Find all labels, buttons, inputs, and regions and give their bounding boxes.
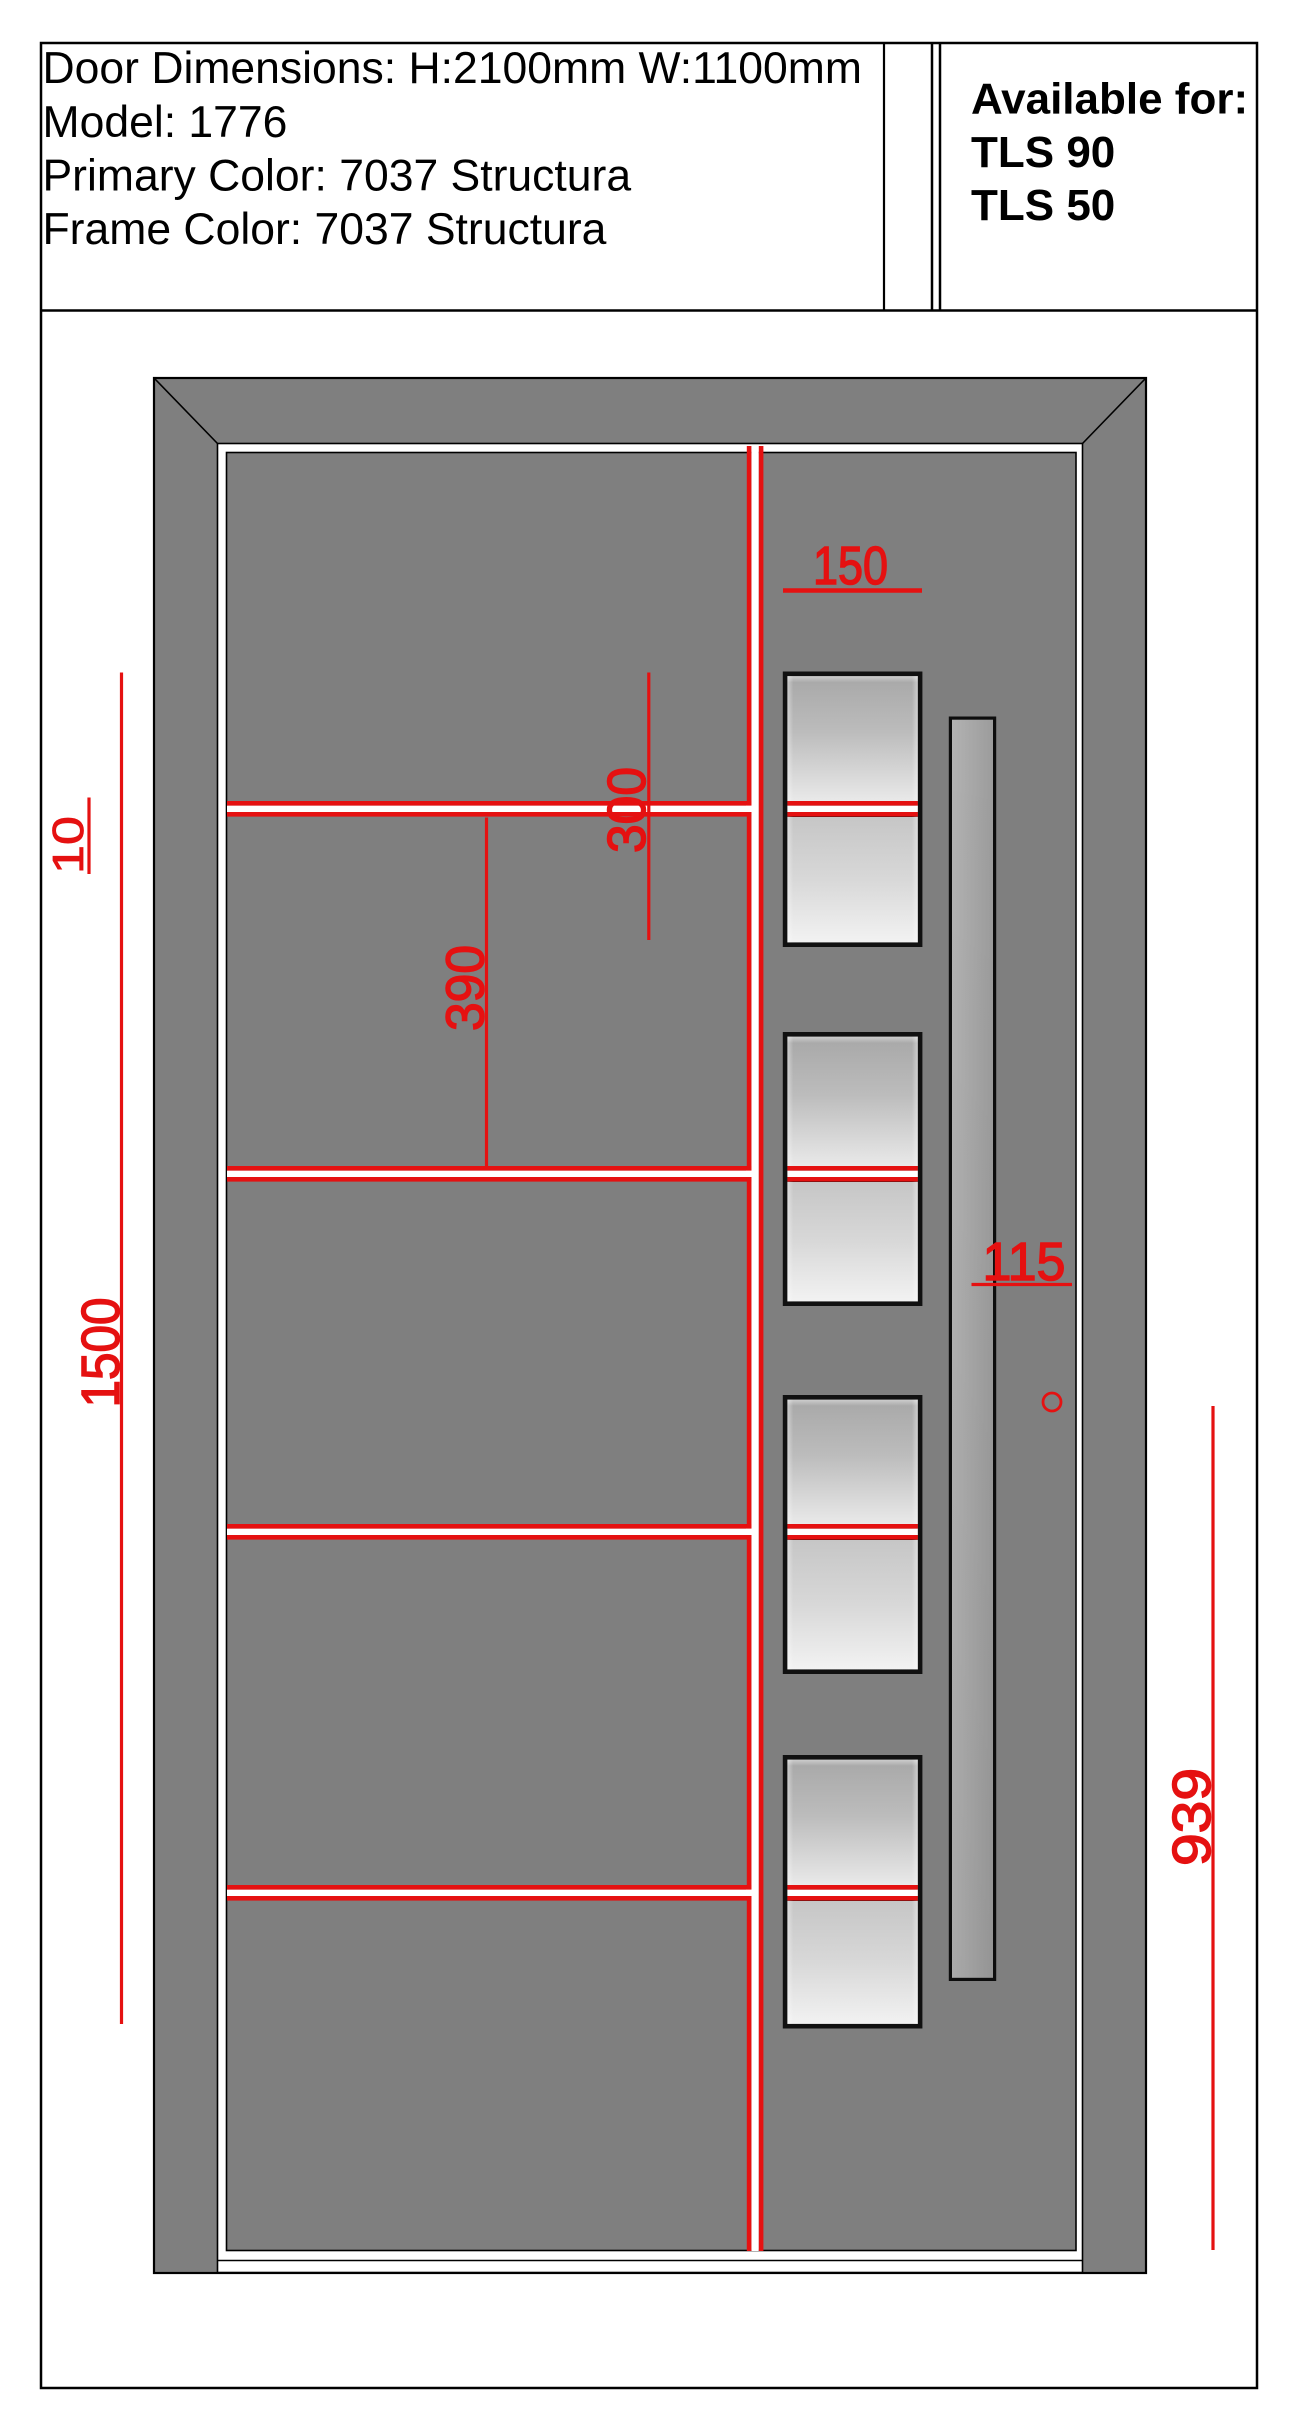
svg-text:Primary Color: 7037 Structura: Primary Color: 7037 Structura xyxy=(43,152,632,201)
svg-text:1500: 1500 xyxy=(71,1298,131,1408)
svg-text:115: 115 xyxy=(983,1232,1066,1292)
svg-text:10: 10 xyxy=(44,816,93,874)
svg-text:Available for:: Available for: xyxy=(971,75,1248,124)
svg-text:390: 390 xyxy=(436,945,496,1031)
svg-text:TLS 90: TLS 90 xyxy=(971,128,1115,177)
svg-text:TLS 50: TLS 50 xyxy=(971,181,1115,230)
svg-text:Frame Color: 7037 Structura: Frame Color: 7037 Structura xyxy=(43,205,607,254)
svg-text:Model: 1776: Model: 1776 xyxy=(43,98,288,147)
svg-text:939: 939 xyxy=(1162,1768,1222,1866)
svg-text:300: 300 xyxy=(597,767,657,853)
svg-text:150: 150 xyxy=(813,536,888,596)
svg-text:Door Dimensions: H:2100mm W:11: Door Dimensions: H:2100mm W:1100mm xyxy=(43,44,862,93)
